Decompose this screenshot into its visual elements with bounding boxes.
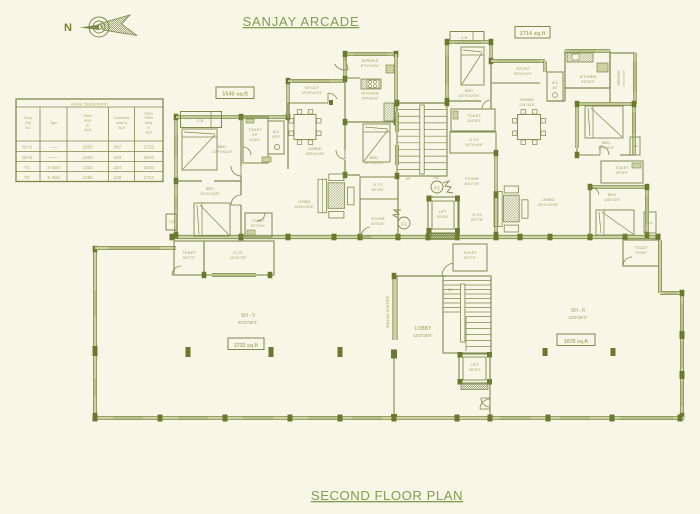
svg-text:ROLLING SHUTTER: ROLLING SHUTTER [386, 296, 390, 328]
svg-text:BED: BED [602, 140, 610, 145]
svg-text:6'0"/7'0": 6'0"/7'0" [183, 256, 196, 260]
svg-text:SH-5: SH-5 [22, 144, 32, 149]
svg-text:C.B: C.B [632, 144, 637, 148]
svg-text:243: 243 [114, 155, 122, 160]
svg-text:LIFT: LIFT [439, 210, 447, 214]
svg-text:10'7½"/12'4½": 10'7½"/12'4½" [458, 94, 480, 98]
svg-text:6'0"/5'3": 6'0"/5'3" [469, 368, 482, 372]
svg-text:16'4½"x10'6": 16'4½"x10'6" [294, 205, 314, 209]
svg-text:4'1½"x7'9½": 4'1½"x7'9½" [622, 70, 626, 87]
svg-text:SH-6: SH-6 [22, 155, 32, 160]
svg-text:1545 sq.ft: 1545 sq.ft [222, 92, 248, 98]
svg-text:34'0'/36'3": 34'0'/36'3" [568, 315, 588, 320]
svg-text:SH - 6: SH - 6 [571, 308, 585, 314]
svg-text:Plinth: Plinth [84, 114, 93, 118]
svg-text:SERVICE: SERVICE [617, 70, 621, 86]
svg-text:5'0": 5'0" [252, 133, 259, 137]
svg-text:UP: UP [406, 177, 411, 181]
svg-text:In: In [86, 123, 89, 127]
svg-text:10'1½"x4'1½": 10'1½"x4'1½" [302, 91, 323, 95]
svg-text:11'6"/5'0": 11'6"/5'0" [467, 119, 482, 123]
svg-text:C.B: C.B [461, 36, 468, 40]
svg-text:60'3"/36'3": 60'3"/36'3" [238, 320, 258, 325]
svg-text:Sq.ft: Sq.ft [145, 131, 152, 135]
svg-text:F1: F1 [24, 165, 30, 170]
svg-text:SANJAY ARCADE: SANJAY ARCADE [243, 14, 360, 29]
svg-text:8'0"/7'6": 8'0"/7'6" [471, 218, 484, 222]
svg-text:2335: 2335 [83, 144, 94, 149]
svg-text:C.B: C.B [197, 118, 204, 123]
svg-text:O.T.S: O.T.S [373, 183, 383, 187]
svg-text:LOBBY: LOBBY [415, 326, 432, 332]
svg-text:Area In: Area In [116, 121, 127, 125]
svg-text:1545: 1545 [144, 165, 155, 170]
svg-text:Area Statement: Area Statement [71, 101, 109, 106]
svg-text:3- Bed: 3- Bed [47, 165, 60, 170]
svg-text:FOYER: FOYER [465, 176, 479, 181]
svg-text:1433: 1433 [83, 155, 94, 160]
svg-text:LIFT: LIFT [471, 363, 479, 367]
svg-text:TOILET: TOILET [467, 114, 481, 118]
svg-text:TOILET: TOILET [463, 251, 477, 255]
svg-text:BED: BED [465, 88, 473, 93]
svg-text:BED: BED [218, 144, 226, 149]
svg-text:O.T.S: O.T.S [233, 251, 243, 255]
svg-text:2732: 2732 [144, 144, 155, 149]
svg-text:8'7½"x4'1½": 8'7½"x4'1½" [361, 64, 380, 68]
svg-text:2732 sq.ft: 2732 sq.ft [234, 343, 258, 349]
svg-text:TOILET: TOILET [249, 128, 263, 132]
svg-text:O.T.S: O.T.S [472, 213, 482, 217]
svg-text:Flat: Flat [25, 121, 31, 125]
svg-text:DN: DN [434, 176, 439, 180]
svg-text:W.C: W.C [552, 81, 559, 85]
svg-text:8'0"/7'6": 8'0"/7'6" [464, 256, 477, 260]
svg-text:KITCHEN: KITCHEN [580, 75, 597, 79]
svg-text:Shop/: Shop/ [24, 116, 33, 120]
svg-text:11'0"/28'6": 11'0"/28'6" [413, 333, 433, 338]
svg-text:10'7½"x4'6": 10'7½"x4'6" [465, 143, 483, 147]
svg-text:6'0"/6'0": 6'0"/6'0" [437, 215, 450, 219]
svg-text:F2: F2 [24, 175, 30, 180]
svg-text:4'6": 4'6" [552, 86, 557, 90]
svg-text:6'10½": 6'10½" [250, 138, 261, 142]
svg-text:13'1½"/11'5": 13'1½"/11'5" [200, 192, 220, 196]
svg-text:Sq.ft: Sq.ft [118, 126, 125, 130]
svg-text:W.C: W.C [273, 130, 280, 134]
svg-text:8'0"x6'0": 8'0"x6'0" [372, 188, 385, 192]
svg-text:249: 249 [114, 175, 122, 180]
svg-text:10'8"x11'4½": 10'8"x11'4½" [305, 152, 325, 156]
svg-text:BED: BED [608, 192, 616, 197]
svg-text:Area: Area [145, 121, 152, 125]
svg-text:Super: Super [144, 111, 154, 115]
svg-text:TOILET: TOILET [182, 251, 196, 255]
svg-text:12'0"/10'0": 12'0"/10'0" [598, 146, 615, 150]
svg-text:F1: F1 [401, 222, 407, 227]
svg-text:——: —— [49, 144, 58, 149]
svg-text:N: N [64, 22, 72, 34]
svg-text:Type: Type [50, 121, 57, 125]
svg-text:KITCHEN: KITCHEN [361, 91, 378, 96]
svg-text:8'1½"x4'1½": 8'1½"x4'1½" [514, 72, 533, 76]
svg-text:13'6"/14'6": 13'6"/14'6" [519, 103, 536, 107]
svg-text:Sq.ft: Sq.ft [84, 128, 91, 132]
svg-text:DINING: DINING [308, 146, 322, 151]
svg-text:4'0½": 4'0½" [272, 135, 280, 139]
svg-text:TOILET: TOILET [615, 166, 629, 170]
svg-text:SECOND FLOOR PLAN: SECOND FLOOR PLAN [311, 488, 463, 503]
svg-text:LIVING: LIVING [542, 197, 555, 202]
svg-text:No.: No. [25, 126, 30, 130]
svg-text:1714: 1714 [144, 175, 155, 180]
svg-text:16'1½"/11'0½": 16'1½"/11'0½" [538, 203, 560, 207]
svg-text:12'7½"x11'0": 12'7½"x11'0" [212, 150, 233, 154]
svg-text:8'0"/7'4½": 8'0"/7'4½" [251, 224, 265, 228]
svg-text:SERVICE: SERVICE [361, 58, 378, 63]
svg-text:BED: BED [206, 186, 214, 191]
svg-text:1321: 1321 [83, 165, 94, 170]
svg-text:FOYER: FOYER [371, 217, 384, 221]
svg-text:13'1½"/7'6": 13'1½"/7'6" [230, 256, 247, 260]
svg-text:SH - 5: SH - 5 [241, 313, 255, 319]
svg-text:1676: 1676 [144, 155, 155, 160]
svg-text:DINING: DINING [520, 97, 534, 102]
svg-text:F2: F2 [434, 186, 440, 191]
svg-text:Area: Area [84, 119, 91, 123]
svg-text:In: In [147, 126, 150, 130]
svg-text:10'0"x8'1½": 10'0"x8'1½" [361, 97, 379, 101]
svg-text:Commons: Commons [114, 116, 130, 120]
svg-text:397: 397 [114, 144, 122, 149]
svg-text:224: 224 [114, 165, 122, 170]
svg-text:9'6"/10'0": 9'6"/10'0" [581, 80, 596, 84]
svg-text:C.B: C.B [169, 220, 174, 224]
svg-text:8'0"/7'1½": 8'0"/7'1½" [464, 182, 480, 186]
svg-text:——: —— [49, 155, 58, 160]
svg-text:8'0"5'1½": 8'0"5'1½" [371, 222, 386, 226]
svg-text:1714 sq.ft: 1714 sq.ft [520, 31, 546, 37]
svg-text:LIVING: LIVING [298, 199, 311, 204]
svg-text:8'0"/5'0": 8'0"/5'0" [616, 171, 629, 175]
svg-text:14'6"/10'6": 14'6"/10'6" [604, 198, 621, 202]
svg-text:1465: 1465 [83, 175, 94, 180]
svg-text:7'0"/5'0": 7'0"/5'0" [635, 251, 648, 255]
svg-text:SITOUT: SITOUT [516, 66, 531, 71]
svg-text:O.T.S: O.T.S [469, 138, 479, 142]
svg-text:DN: DN [448, 288, 453, 292]
svg-text:BED: BED [370, 155, 378, 160]
svg-text:1676 sq.ft: 1676 sq.ft [564, 339, 588, 345]
svg-text:3- Bed: 3- Bed [47, 175, 60, 180]
svg-text:TOILET: TOILET [634, 246, 648, 250]
svg-text:Plinth: Plinth [145, 116, 154, 120]
svg-text:SITOUT: SITOUT [305, 85, 320, 90]
